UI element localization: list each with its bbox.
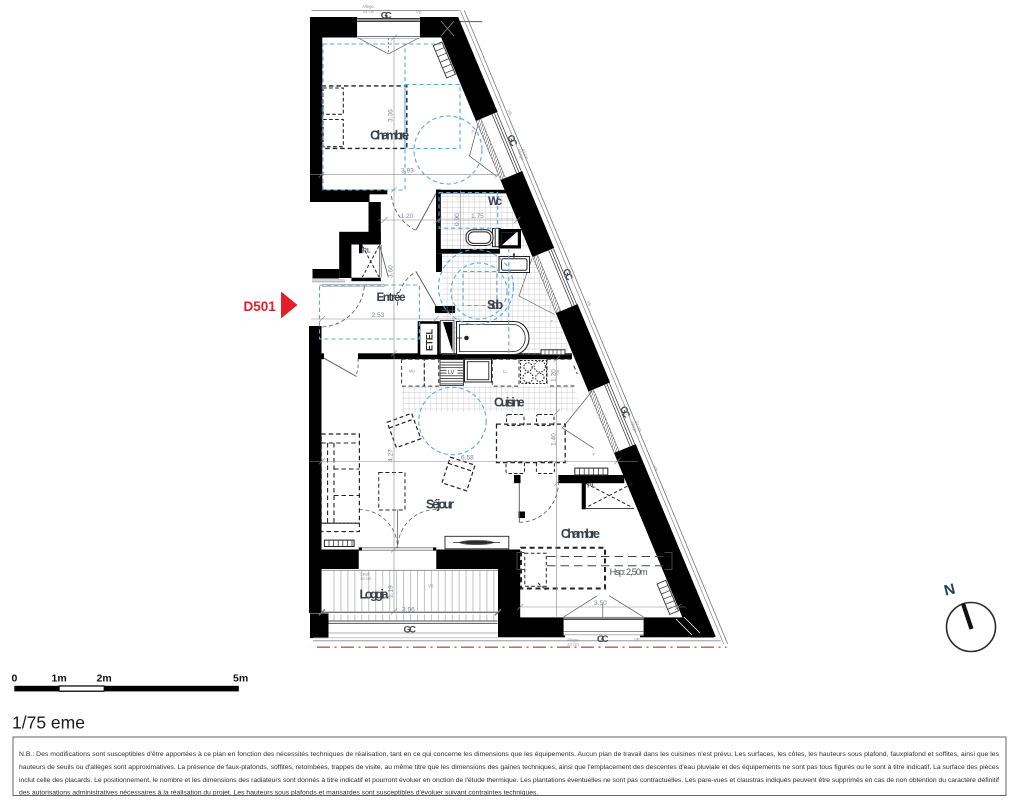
svg-text:3.50: 3.50 bbox=[594, 600, 607, 607]
svg-text:D501: D501 bbox=[244, 299, 277, 314]
svg-text:1.40: 1.40 bbox=[551, 433, 558, 446]
svg-text:Mo: Mo bbox=[409, 369, 415, 374]
svg-text:1.20: 1.20 bbox=[551, 369, 558, 382]
svg-text:PL: PL bbox=[587, 483, 595, 490]
svg-text:GC: GC bbox=[597, 634, 609, 645]
svg-text:inclut celle des placards. Le: inclut celle des placards. Le positionne… bbox=[19, 777, 999, 784]
svg-text:Wc: Wc bbox=[488, 196, 503, 208]
svg-text:Loggia: Loggia bbox=[360, 588, 390, 602]
svg-text:3.93: 3.93 bbox=[401, 168, 414, 175]
svg-text:VB: VB bbox=[634, 637, 640, 642]
svg-text:N: N bbox=[942, 581, 957, 600]
svg-text:GC: GC bbox=[381, 10, 392, 21]
svg-text:VB: VB bbox=[428, 584, 434, 589]
svg-text:3.36: 3.36 bbox=[388, 109, 395, 122]
svg-text:hauteurs de seuils ou d'allège: hauteurs de seuils ou d'allèges sont app… bbox=[19, 764, 1000, 771]
svg-text:des autorisations administrati: des autorisations administratives nécess… bbox=[19, 790, 538, 797]
svg-text:VB: VB bbox=[416, 9, 422, 14]
svg-text:LL: LL bbox=[503, 369, 508, 374]
svg-text:Chambre: Chambre bbox=[561, 527, 600, 541]
svg-text:5m: 5m bbox=[233, 673, 248, 685]
svg-text:1.75: 1.75 bbox=[471, 213, 484, 220]
svg-text:PL: PL bbox=[363, 248, 371, 255]
svg-text:10 cm: 10 cm bbox=[360, 576, 372, 581]
svg-text:Séjour: Séjour bbox=[426, 498, 454, 512]
svg-text:F: F bbox=[472, 129, 475, 134]
svg-text:2m: 2m bbox=[97, 673, 112, 685]
svg-text:N.B.: Des modifications sont s: N.B.: Des modifications sont susceptible… bbox=[19, 751, 1000, 758]
svg-text:43 cm: 43 cm bbox=[567, 642, 579, 647]
svg-text:0.90: 0.90 bbox=[454, 213, 461, 226]
svg-text:ETEL: ETEL bbox=[425, 329, 435, 352]
svg-text:Cuisine: Cuisine bbox=[494, 396, 525, 410]
svg-text:2.53: 2.53 bbox=[372, 312, 385, 319]
svg-text:1.19: 1.19 bbox=[388, 585, 395, 598]
svg-text:3.96: 3.96 bbox=[402, 606, 415, 613]
svg-text:6.58: 6.58 bbox=[461, 455, 474, 462]
svg-text:1.20: 1.20 bbox=[401, 213, 414, 220]
svg-text:Entrée: Entrée bbox=[377, 292, 406, 304]
svg-text:Chambre: Chambre bbox=[370, 129, 409, 143]
svg-text:1m: 1m bbox=[52, 673, 67, 685]
svg-text:1/75 eme: 1/75 eme bbox=[12, 713, 85, 733]
svg-text:F: F bbox=[593, 452, 596, 457]
svg-text:3.60: 3.60 bbox=[388, 265, 395, 278]
svg-text:43 cm: 43 cm bbox=[363, 9, 375, 14]
svg-text:GC: GC bbox=[403, 625, 416, 636]
svg-text:LV: LV bbox=[448, 370, 455, 376]
svg-text:4.27: 4.27 bbox=[388, 449, 395, 462]
svg-text:Sdb: Sdb bbox=[487, 298, 503, 312]
svg-text:0: 0 bbox=[12, 673, 18, 685]
svg-text:Hsp: 2,50m: Hsp: 2,50m bbox=[610, 567, 648, 577]
